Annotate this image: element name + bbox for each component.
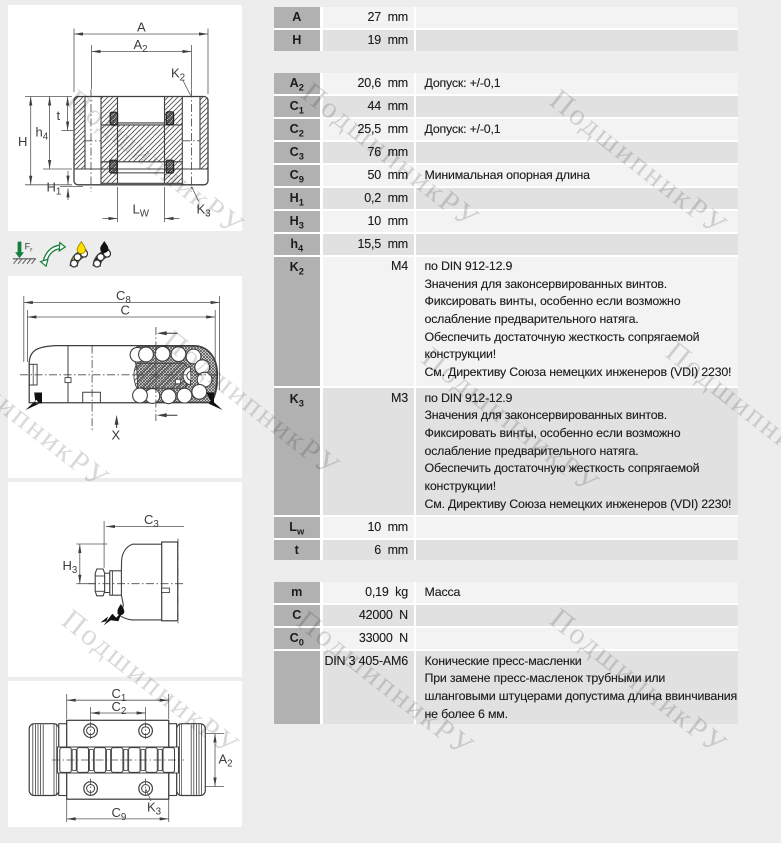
svg-text:X: X [112,428,121,443]
svg-text:H1: H1 [47,180,62,198]
svg-text:C3: C3 [144,512,159,530]
svg-text:K3: K3 [147,800,162,818]
svg-text:t: t [57,108,61,123]
svg-text:K3: K3 [197,202,212,220]
svg-text:C: C [121,303,130,318]
svg-text:H: H [18,134,27,149]
svg-text:A: A [137,20,146,35]
svg-text:A2: A2 [219,752,233,770]
svg-text:H3: H3 [63,558,78,576]
svg-text:A2: A2 [134,37,148,55]
svg-text:C9: C9 [112,805,127,823]
svg-text:h4: h4 [36,125,49,143]
svg-text:Fr: Fr [25,242,33,254]
svg-text:LW: LW [133,202,150,220]
